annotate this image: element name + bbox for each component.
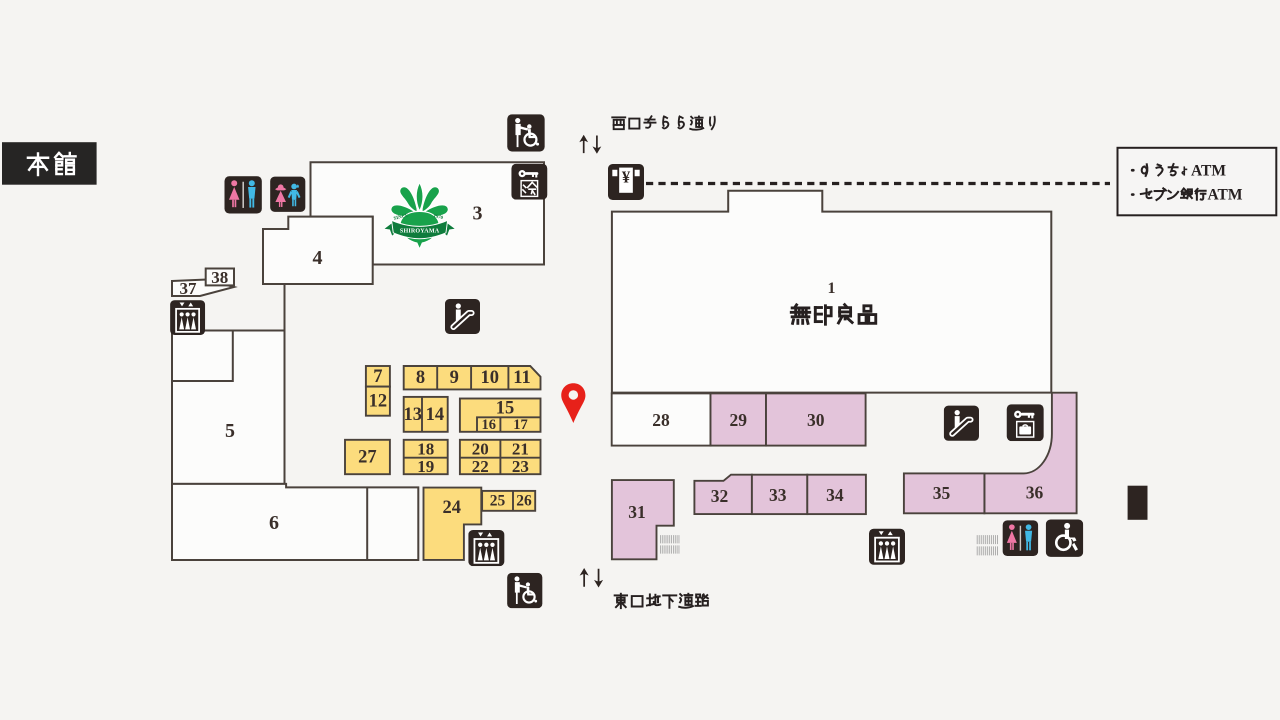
svg-text:13: 13 [404,405,423,425]
svg-text:ATM: ATM [1191,162,1226,179]
svg-text:7: 7 [373,367,382,387]
svg-text:36: 36 [1026,482,1044,502]
svg-text:28: 28 [652,410,670,430]
svg-text:34: 34 [826,485,844,505]
svg-text:22: 22 [472,457,489,476]
svg-text:8: 8 [416,368,425,388]
svg-text:16: 16 [481,417,496,433]
svg-text:5: 5 [225,420,235,442]
svg-text:9: 9 [450,368,459,388]
svg-text:15: 15 [496,398,515,418]
svg-text:24: 24 [442,498,461,518]
svg-text:ATM: ATM [1208,187,1243,204]
svg-text:11: 11 [513,368,530,388]
svg-text:35: 35 [933,483,951,503]
svg-text:18: 18 [417,440,434,459]
svg-text:17: 17 [513,417,528,433]
svg-text:21: 21 [512,440,529,459]
svg-text:27: 27 [358,447,377,467]
svg-text:SHIROYAMA: SHIROYAMA [400,229,440,235]
svg-text:19: 19 [417,457,434,476]
svg-text:38: 38 [211,268,228,287]
svg-text:29: 29 [729,410,747,430]
svg-text:31: 31 [628,502,646,522]
svg-text:12: 12 [369,392,388,412]
svg-text:3: 3 [473,203,483,225]
svg-text:14: 14 [426,405,445,425]
svg-text:20: 20 [472,440,489,459]
svg-text:33: 33 [769,485,787,505]
svg-text:1: 1 [828,280,836,297]
svg-text:30: 30 [807,410,825,430]
svg-text:10: 10 [481,368,500,388]
svg-text:37: 37 [180,279,198,298]
svg-text:32: 32 [711,486,729,506]
svg-text:4: 4 [313,247,323,269]
svg-text:23: 23 [512,457,529,476]
svg-text:25: 25 [490,493,506,510]
svg-text:6: 6 [269,512,279,534]
svg-text:26: 26 [516,493,532,510]
